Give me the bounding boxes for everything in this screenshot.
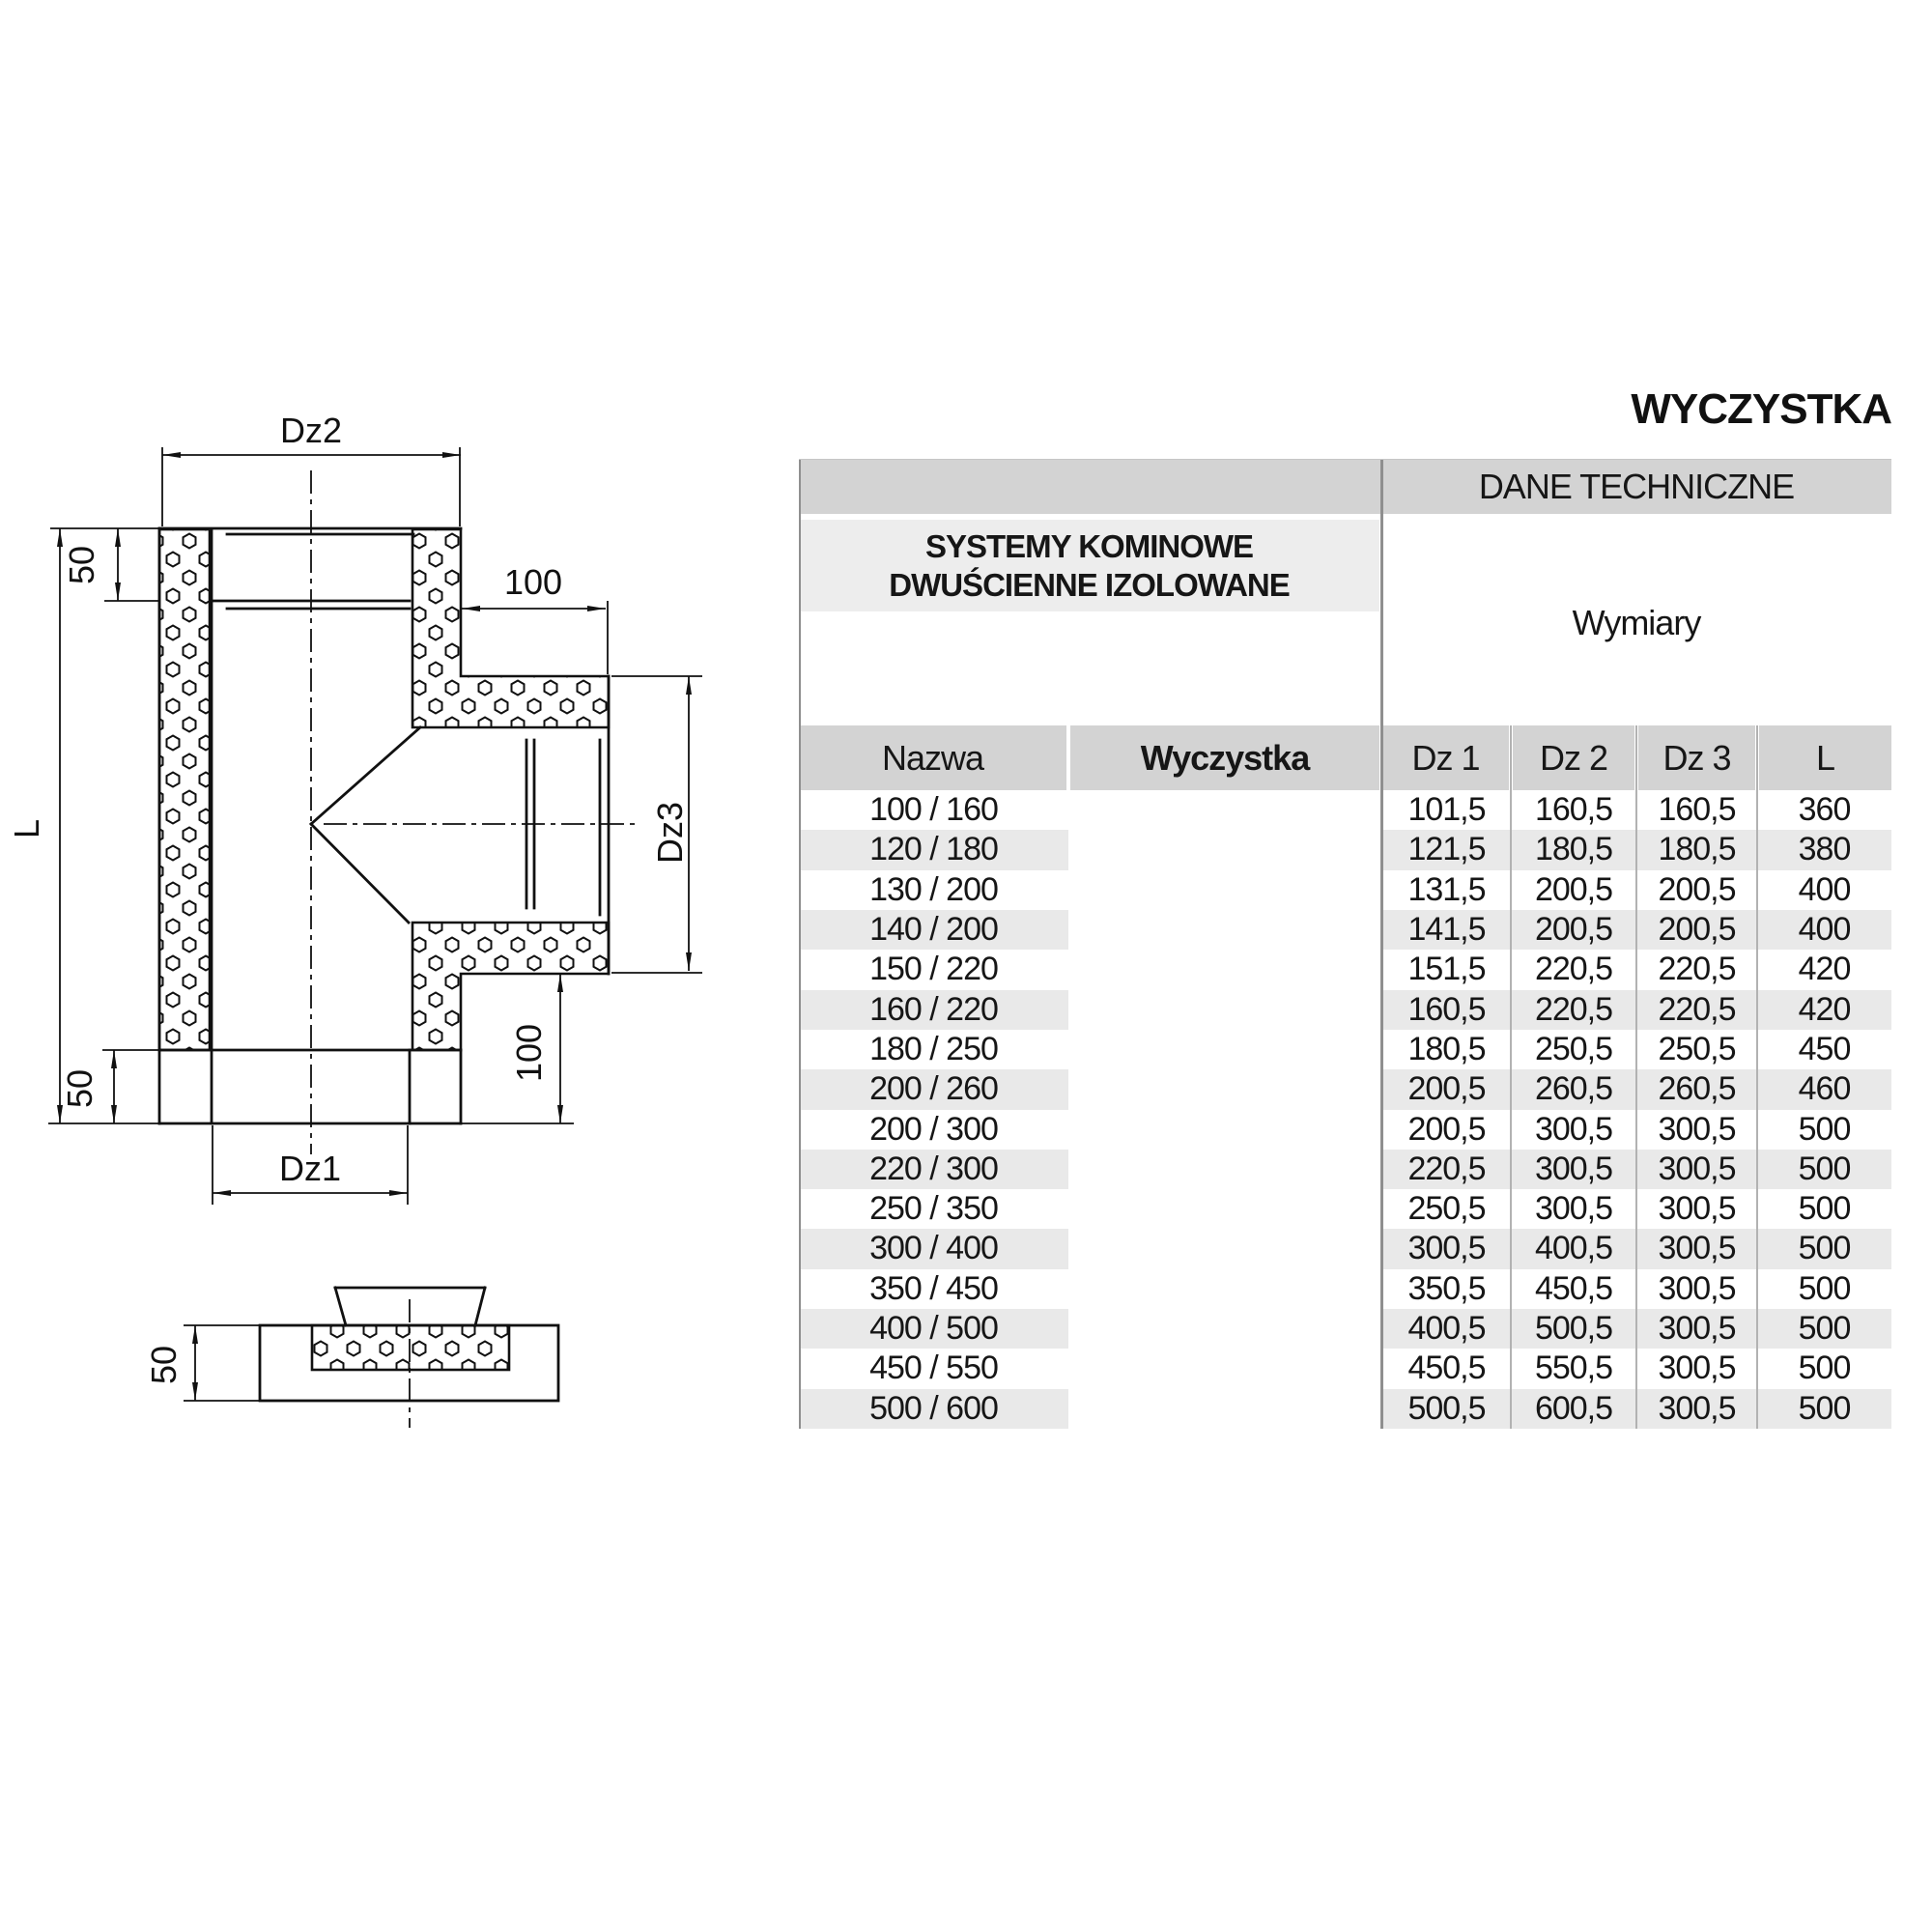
table-cell: 350 / 450 [799,1269,1068,1309]
table-cell: 500 [1757,1269,1891,1309]
table-cell: 220 / 300 [799,1150,1068,1189]
table-cell: 200,5 [1382,1110,1511,1150]
table-cell: 151,5 [1382,950,1511,989]
group-header-wymiary: Wymiary [1381,520,1891,725]
table-cell: 400 / 500 [799,1309,1068,1349]
table-row: 400 / 500400,5500,5300,5500 [799,1309,1891,1349]
table-cell: 300,5 [1511,1189,1636,1229]
technical-drawing-tee-cleanout: Dz2 50 L 100 Dz3 100 Dz1 50 50 [0,367,773,1517]
column-header-nazwa: Nazwa [799,725,1066,790]
table-cell: 101,5 [1382,790,1511,830]
table-cell: 300,5 [1511,1150,1636,1189]
spec-table: DANE TECHNICZNE SYSTEMY KOMINOWE DWUŚCIE… [799,459,1891,1429]
table-cell: 121,5 [1382,830,1511,869]
table-cell: 400 [1757,870,1891,910]
table-cell: 300,5 [1636,1309,1757,1349]
table-rows: 100 / 160101,5160,5160,5360120 / 180121,… [799,790,1891,1429]
table-cell: 300,5 [1636,1229,1757,1268]
page: { "title": "WYCZYSTKA", "table": { "head… [0,0,1932,1932]
table-cell: 500 [1757,1349,1891,1388]
table-cell: 180 / 250 [799,1030,1068,1069]
table-cell: 300,5 [1636,1389,1757,1429]
table-cell: 500 [1757,1229,1891,1268]
table-cell: 500 [1757,1309,1891,1349]
table-cell: 200,5 [1511,910,1636,950]
table-cell: 360 [1757,790,1891,830]
table-cell: 160,5 [1636,790,1757,830]
table-row: 100 / 160101,5160,5160,5360 [799,790,1891,830]
table-cell: 500 [1757,1389,1891,1429]
table-cell: 300,5 [1636,1189,1757,1229]
table-cell: 500 [1757,1110,1891,1150]
table-row: 450 / 550450,5550,5300,5500 [799,1349,1891,1388]
table-row: 180 / 250180,5250,5250,5450 [799,1030,1891,1069]
label-50-bottom-view: 50 [144,1346,184,1384]
table-cell: 300,5 [1511,1110,1636,1150]
table-cell: 200,5 [1636,870,1757,910]
table-cell: 200,5 [1382,1069,1511,1109]
label-dz3: Dz3 [650,802,690,864]
table-cell: 220,5 [1636,990,1757,1030]
table-cell: 450,5 [1382,1349,1511,1388]
table-cell: 131,5 [1382,870,1511,910]
table-cell: 220,5 [1382,1150,1511,1189]
table-cell: 160 / 220 [799,990,1068,1030]
table-cell: 200 / 260 [799,1069,1068,1109]
table-row: 150 / 220151,5220,5220,5420 [799,950,1891,989]
label-dz2: Dz2 [280,411,342,450]
table-row: 160 / 220160,5220,5220,5420 [799,990,1891,1030]
table-cell: 130 / 200 [799,870,1068,910]
table-cell: 500 / 600 [799,1389,1068,1429]
table-cell: 180,5 [1511,830,1636,869]
column-header-dz3: Dz 3 [1638,725,1755,790]
table-cell: 260,5 [1636,1069,1757,1109]
table-cell: 180,5 [1636,830,1757,869]
label-100-bottom: 100 [509,1024,549,1082]
table-cell: 400 [1757,910,1891,950]
table-divider-dz3-l [1756,725,1758,1429]
table-cell: 380 [1757,830,1891,869]
section-title: SYSTEMY KOMINOWE DWUŚCIENNE IZOLOWANE [799,520,1379,611]
table-main-divider [1380,460,1383,1429]
table-divider-dz2-dz3 [1635,725,1637,1429]
table-row: 250 / 350250,5300,5300,5500 [799,1189,1891,1229]
table-row: 140 / 200141,5200,5200,5400 [799,910,1891,950]
table-cell: 300,5 [1636,1110,1757,1150]
table-divider-dz1-dz2 [1510,725,1512,1429]
table-cell: 180,5 [1382,1030,1511,1069]
table-cell: 160,5 [1511,790,1636,830]
table-cell: 500,5 [1511,1309,1636,1349]
table-cell: 300,5 [1636,1269,1757,1309]
page-title: WYCZYSTKA [1631,385,1891,434]
table-cell: 250,5 [1382,1189,1511,1229]
table-cell: 420 [1757,950,1891,989]
table-cell: 450,5 [1511,1269,1636,1309]
table-cell: 500 [1757,1189,1891,1229]
table-cell: 350,5 [1382,1269,1511,1309]
table-cell: 200,5 [1511,870,1636,910]
table-cell: 160,5 [1382,990,1511,1030]
table-cell: 500,5 [1382,1389,1511,1429]
table-cell: 220,5 [1636,950,1757,989]
table-cell: 550,5 [1511,1349,1636,1388]
table-cell: 450 [1757,1030,1891,1069]
label-50-top: 50 [62,546,101,584]
table-cell: 140 / 200 [799,910,1068,950]
table-cell: 260,5 [1511,1069,1636,1109]
table-cell: 200 / 300 [799,1110,1068,1150]
section-title-line1: SYSTEMY KOMINOWE [799,527,1379,566]
table-cell: 220,5 [1511,950,1636,989]
column-header-dz2: Dz 2 [1513,725,1634,790]
table-cell: 220,5 [1511,990,1636,1030]
table-row: 120 / 180121,5180,5180,5380 [799,830,1891,869]
table-cell: 250 / 350 [799,1189,1068,1229]
table-cell: 100 / 160 [799,790,1068,830]
table-row: 300 / 400300,5400,5300,5500 [799,1229,1891,1268]
column-header-wyczystka: Wyczystka [1070,725,1379,790]
table-cell: 120 / 180 [799,830,1068,869]
table-cell: 300 / 400 [799,1229,1068,1268]
table-row: 200 / 300200,5300,5300,5500 [799,1110,1891,1150]
table-cell: 300,5 [1382,1229,1511,1268]
table-row: 200 / 260200,5260,5260,5460 [799,1069,1891,1109]
label-100-top: 100 [504,562,562,602]
table-cell: 300,5 [1636,1349,1757,1388]
column-header-l: L [1759,725,1891,790]
table-cell: 500 [1757,1150,1891,1189]
table-header-dane-techniczne: DANE TECHNICZNE [1381,460,1891,514]
table-row: 220 / 300220,5300,5300,5500 [799,1150,1891,1189]
column-header-dz1: Dz 1 [1382,725,1509,790]
table-cell: 400,5 [1382,1309,1511,1349]
table-cell: 600,5 [1511,1389,1636,1429]
table-cell: 141,5 [1382,910,1511,950]
dimension-labels: Dz2 50 L 100 Dz3 100 Dz1 50 50 [7,411,690,1384]
table-cell: 400,5 [1511,1229,1636,1268]
table-row: 130 / 200131,5200,5200,5400 [799,870,1891,910]
table-row: 350 / 450350,5450,5300,5500 [799,1269,1891,1309]
table-cell: 150 / 220 [799,950,1068,989]
table-left-border [799,460,801,1429]
table-row: 500 / 600500,5600,5300,5500 [799,1389,1891,1429]
section-title-line2: DWUŚCIENNE IZOLOWANE [799,566,1379,605]
table-cell: 450 / 550 [799,1349,1068,1388]
table-cell: 300,5 [1636,1150,1757,1189]
label-l: L [7,819,46,838]
label-50-collar: 50 [60,1069,99,1108]
label-dz1: Dz1 [279,1149,341,1188]
insulation-hatch [159,529,609,1370]
table-cell: 250,5 [1511,1030,1636,1069]
table-cell: 460 [1757,1069,1891,1109]
table-cell: 200,5 [1636,910,1757,950]
table-cell: 250,5 [1636,1030,1757,1069]
table-cell: 420 [1757,990,1891,1030]
